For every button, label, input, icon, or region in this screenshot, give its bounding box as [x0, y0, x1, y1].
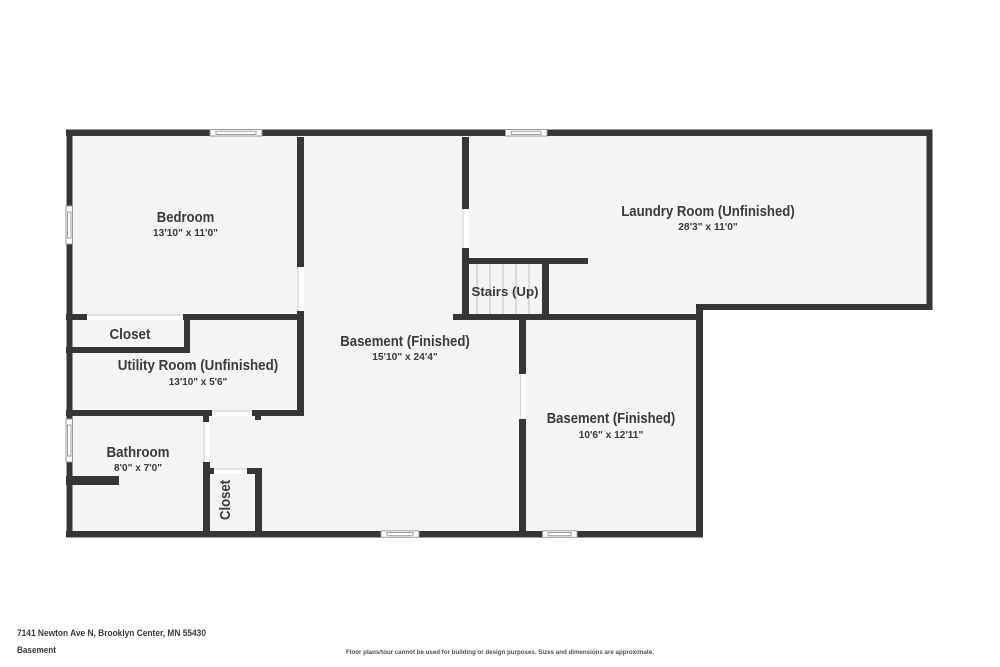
svg-text:Bathroom: Bathroom	[107, 445, 170, 461]
svg-text:13'10" x 5'6": 13'10" x 5'6"	[169, 376, 228, 388]
svg-text:Laundry Room (Unfinished): Laundry Room (Unfinished)	[621, 204, 795, 220]
svg-text:Closet: Closet	[217, 480, 234, 520]
svg-text:Closet: Closet	[110, 327, 151, 343]
svg-text:Basement (Finished): Basement (Finished)	[340, 334, 470, 350]
svg-text:8'0" x 7'0": 8'0" x 7'0"	[114, 462, 162, 474]
svg-text:Floor plans/tour cannot be use: Floor plans/tour cannot be used for buil…	[346, 649, 654, 656]
svg-text:Bedroom: Bedroom	[157, 210, 215, 226]
svg-text:Basement: Basement	[17, 645, 57, 656]
svg-text:28'3" x 11'0": 28'3" x 11'0"	[678, 221, 738, 233]
svg-text:7141 Newton Ave N, Brooklyn Ce: 7141 Newton Ave N, Brooklyn Center, MN 5…	[17, 628, 206, 639]
svg-text:10'6" x 12'11": 10'6" x 12'11"	[579, 429, 644, 441]
svg-text:15'10" x 24'4": 15'10" x 24'4"	[372, 351, 438, 363]
svg-text:Basement (Finished): Basement (Finished)	[547, 411, 676, 427]
svg-text:Utility Room (Unfinished): Utility Room (Unfinished)	[118, 358, 279, 374]
svg-text:13'10" x 11'0": 13'10" x 11'0"	[153, 227, 218, 239]
svg-text:Stairs (Up): Stairs (Up)	[472, 284, 539, 299]
